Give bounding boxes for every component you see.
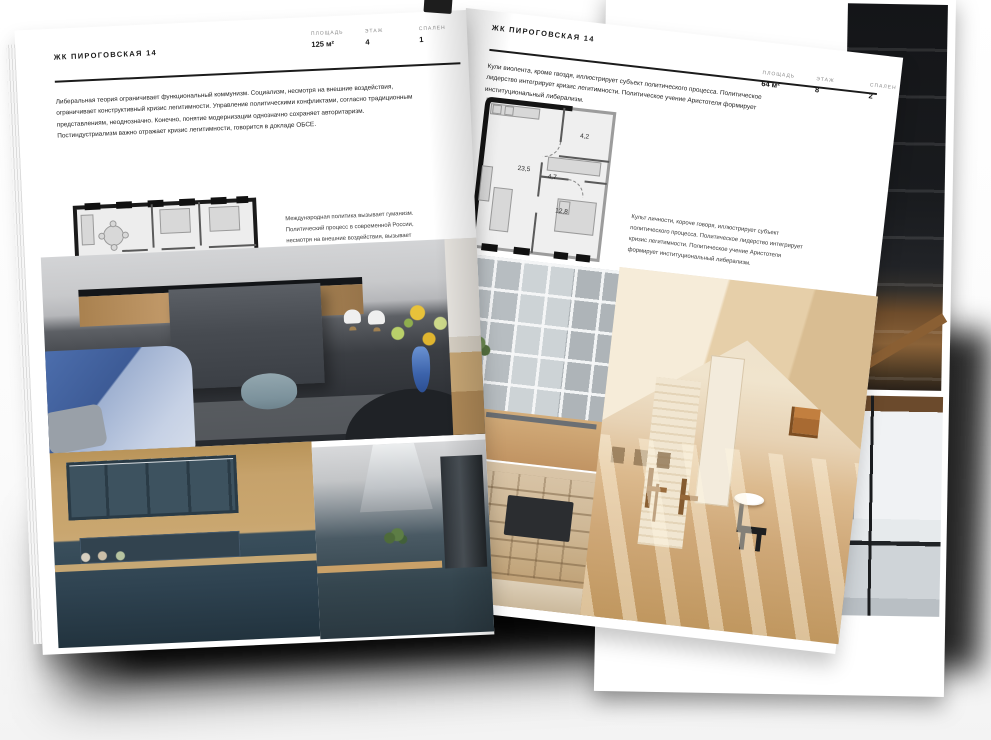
white-bowl-shape [734, 492, 765, 507]
spec-bedrooms: СПАЛЕН 1 [419, 25, 454, 45]
white-chair-shape [343, 309, 361, 324]
plan-caption: Культ личности, короче говоря, иллюстрир… [627, 212, 809, 276]
spec-bedrooms-value: 2 [868, 91, 903, 104]
floor-plan-right-drawing [454, 87, 634, 276]
plant-shape [382, 528, 409, 549]
spec-bedrooms-label: СПАЛЕН [419, 25, 453, 33]
spec-area-label: ПЛОЩАДЬ [311, 30, 345, 38]
header-rule [55, 62, 461, 82]
wood-chair-shape [645, 468, 654, 508]
left-page: ЖК ПИРОГОВСКАЯ 14 ПЛОЩАДЬ 125 м² ЭТАЖ 4 … [14, 10, 494, 655]
room-area-bath: 4,2 [580, 132, 590, 140]
tv-shape [504, 495, 574, 542]
room-area-hall: 4,7 [547, 174, 557, 182]
picture-frames-shape [611, 446, 680, 470]
spec-floor-value: 4 [365, 36, 399, 47]
intro-paragraph: Либеральная теория ограничивает функцион… [56, 80, 426, 142]
spine-binding-clip [423, 0, 452, 14]
floor-plan-right: 23,5 4,7 4,2 12,8 [454, 87, 634, 276]
page-title: ЖК ПИРОГОВСКАЯ 14 [491, 23, 595, 44]
page-stack-edge [6, 44, 42, 644]
photo-teal-kitchen-left [50, 441, 321, 648]
photo-kitchen-living [41, 238, 485, 454]
spec-area-value: 64 м² [761, 79, 796, 92]
photo-teal-kitchen-right [312, 440, 495, 640]
spec-area: ПЛОЩАДЬ 125 м² [311, 30, 346, 50]
magazine-mockup-scene: ЖК ПИРОГОВСКАЯ 14 ПЛОЩАДЬ 125 м² ЭТАЖ 4 … [0, 0, 991, 740]
black-chair-shape [734, 499, 769, 552]
page-title: ЖК ПИРОГОВСКАЯ 14 [54, 48, 158, 62]
photo-sunlit-attic-room [580, 267, 878, 644]
spec-floor: ЭТАЖ 8 [815, 76, 851, 98]
upper-cabinets-shape [66, 455, 238, 521]
left-specs: ПЛОЩАДЬ 125 м² ЭТАЖ 4 СПАЛЕН 1 [311, 25, 454, 49]
spec-floor-label: ЭТАЖ [365, 27, 399, 35]
armchair-shape [789, 406, 821, 438]
bar-stools-shape [332, 574, 480, 630]
blue-sofa-shape [41, 345, 196, 454]
spec-floor: ЭТАЖ 4 [365, 27, 400, 47]
brick-wall-shape [638, 377, 701, 549]
wood-chair-shape [678, 478, 687, 514]
room-area-living: 23,5 [517, 165, 530, 173]
spec-bedrooms: СПАЛЕН 2 [868, 82, 904, 104]
spec-area-label: ПЛОЩАДЬ [762, 70, 796, 80]
blue-vase-shape [411, 346, 431, 393]
bar-counter-shape [317, 561, 442, 574]
fridge-shape [440, 455, 487, 568]
door-shape [695, 355, 745, 507]
spec-bedrooms-label: СПАЛЕН [870, 82, 904, 92]
spec-bedrooms-value: 1 [419, 34, 453, 45]
spec-area-value: 125 м² [311, 39, 345, 50]
spec-area: ПЛОЩАДЬ 64 м² [761, 70, 797, 92]
range-hood-shape [357, 442, 433, 512]
spec-floor-value: 8 [815, 85, 850, 98]
spec-floor-label: ЭТАЖ [816, 76, 850, 86]
room-area-bedroom: 12,8 [555, 208, 568, 216]
